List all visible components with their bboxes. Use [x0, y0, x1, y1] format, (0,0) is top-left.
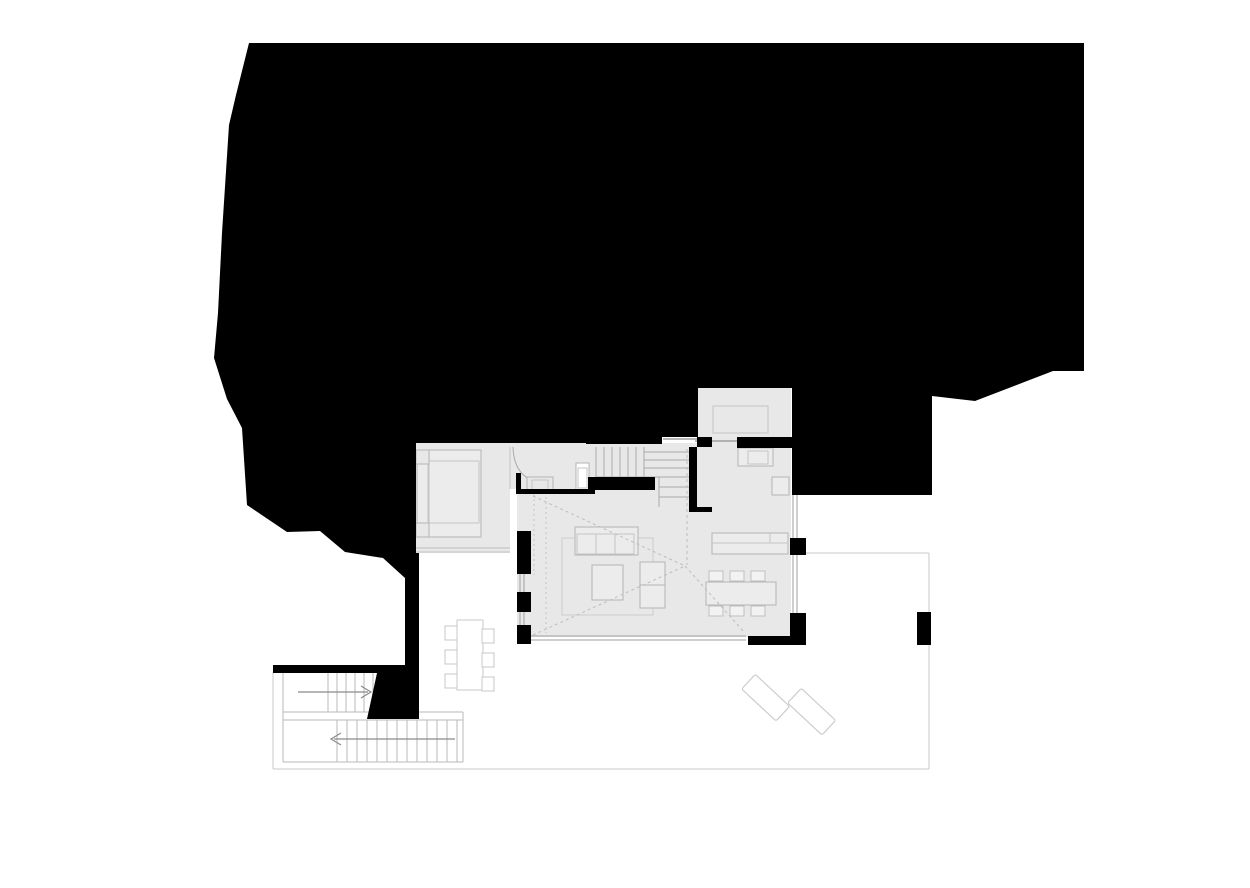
- dining-table: [706, 582, 776, 605]
- dining-chair: [709, 606, 723, 616]
- kitchen-tall-cabinet: [772, 477, 789, 495]
- coffee-table: [592, 565, 623, 600]
- stair-retaining-band: [273, 665, 419, 673]
- sofa: [575, 527, 638, 555]
- lounger: [788, 688, 836, 735]
- outdoor-table: [457, 620, 483, 690]
- outdoor-chair: [445, 650, 457, 664]
- dining-chair: [751, 606, 765, 616]
- north-wall-mid: [697, 437, 712, 447]
- dining-chair: [730, 606, 744, 616]
- understair-wall: [588, 477, 655, 490]
- armchair-ottoman: [640, 585, 665, 608]
- west-wall-segment: [517, 625, 531, 644]
- outdoor-chair: [445, 626, 457, 640]
- se-corner-wall-h: [748, 636, 806, 645]
- bath-wall-horizontal: [516, 489, 595, 494]
- terrace-pier: [917, 612, 931, 645]
- outdoor-chair: [445, 674, 457, 688]
- west-wall-segment: [517, 592, 531, 612]
- north-wall-west: [586, 436, 662, 444]
- outdoor-chair: [482, 629, 494, 643]
- dining-chair: [751, 571, 765, 581]
- outdoor-chair: [482, 653, 494, 667]
- stair-stub-wall: [689, 507, 712, 512]
- stair-retaining-wedge: [367, 673, 419, 719]
- nightstand: [416, 450, 429, 464]
- lounger: [742, 674, 790, 721]
- bath-wall-vertical: [516, 473, 521, 490]
- west-wall-segment: [517, 531, 531, 574]
- dining-chair: [709, 571, 723, 581]
- floor-plan-page: [0, 0, 1250, 888]
- outdoor-chair: [482, 677, 494, 691]
- stair-east-wall: [689, 447, 697, 512]
- armchair-seat: [640, 562, 665, 585]
- east-wall-pier: [790, 538, 806, 555]
- dining-chair: [730, 571, 744, 581]
- floor-plan-drawing: [0, 0, 1250, 888]
- north-wall-east: [737, 437, 792, 448]
- nightstand: [416, 523, 429, 537]
